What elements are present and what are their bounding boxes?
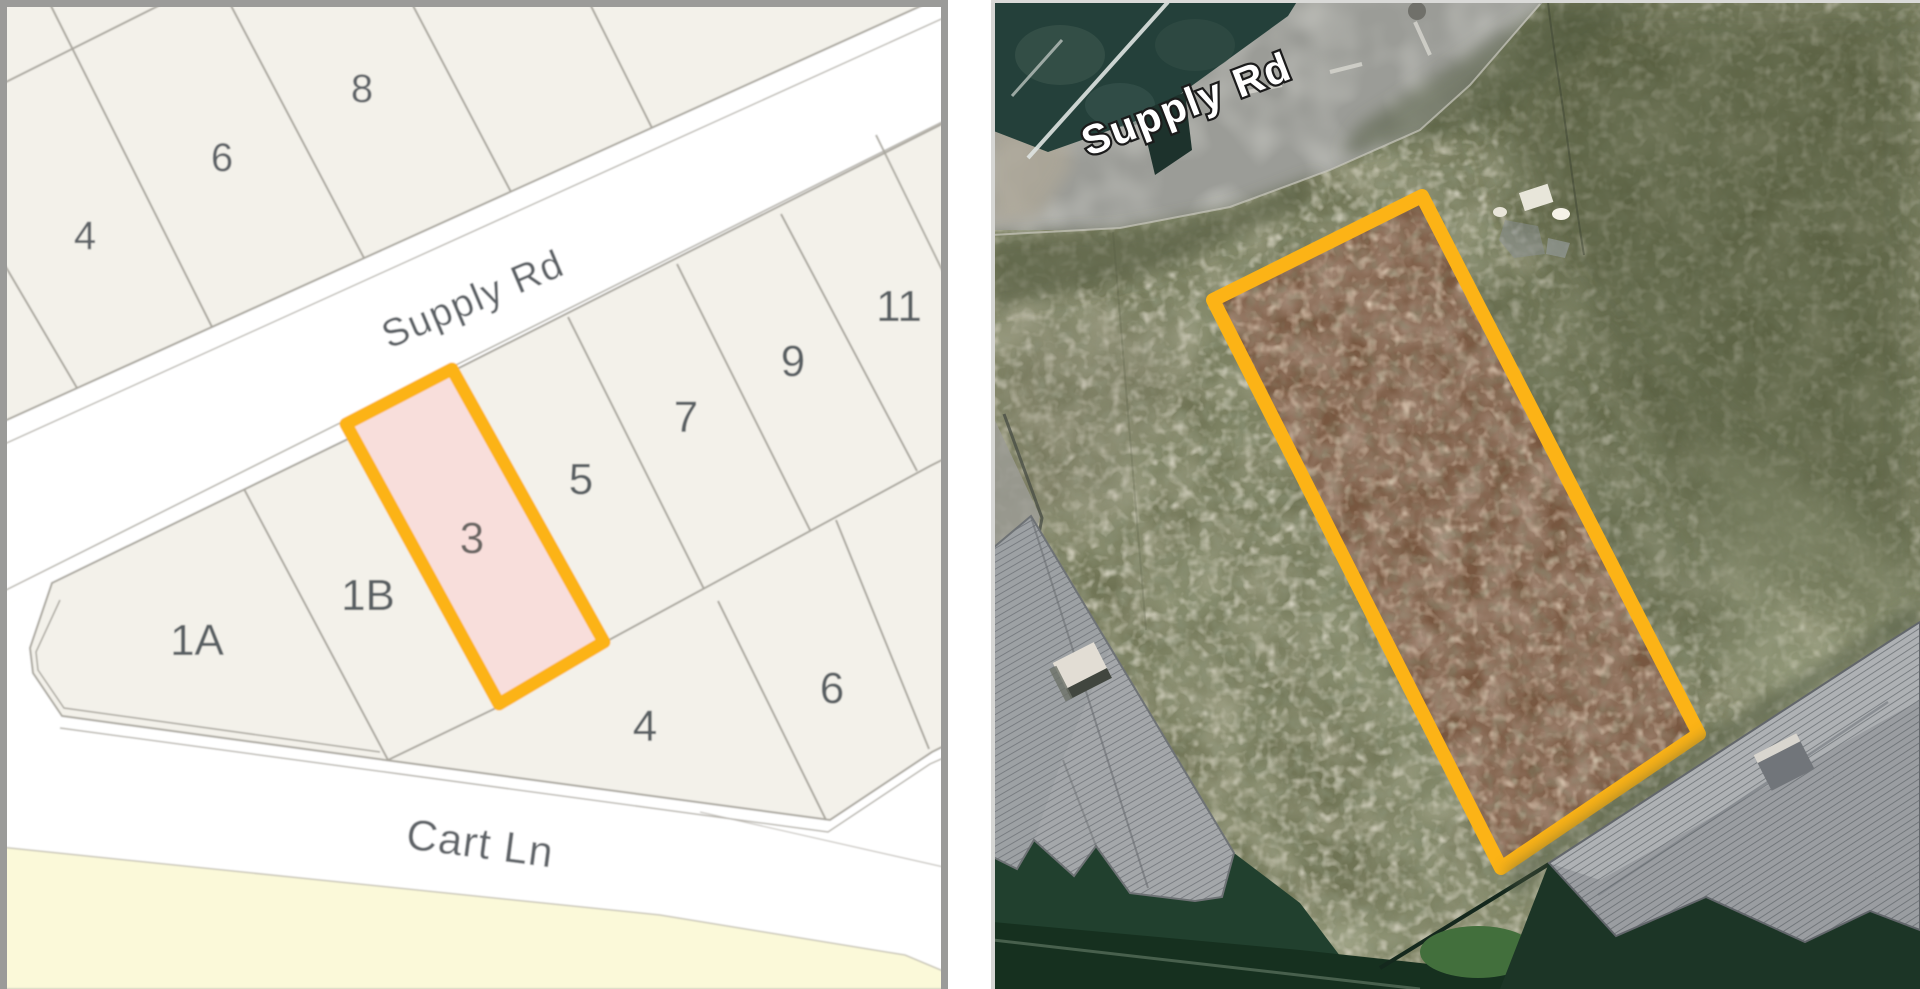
svg-text:1B: 1B [341, 571, 395, 620]
svg-text:9: 9 [781, 337, 805, 386]
svg-text:1A: 1A [170, 616, 224, 665]
svg-text:3: 3 [460, 514, 484, 563]
svg-text:6: 6 [820, 664, 844, 713]
svg-text:4: 4 [633, 702, 657, 751]
svg-text:11: 11 [876, 282, 922, 331]
svg-text:8: 8 [351, 67, 373, 111]
svg-text:4: 4 [74, 214, 96, 258]
svg-text:5: 5 [569, 455, 593, 504]
svg-text:6: 6 [211, 136, 233, 180]
svg-text:7: 7 [674, 393, 698, 442]
